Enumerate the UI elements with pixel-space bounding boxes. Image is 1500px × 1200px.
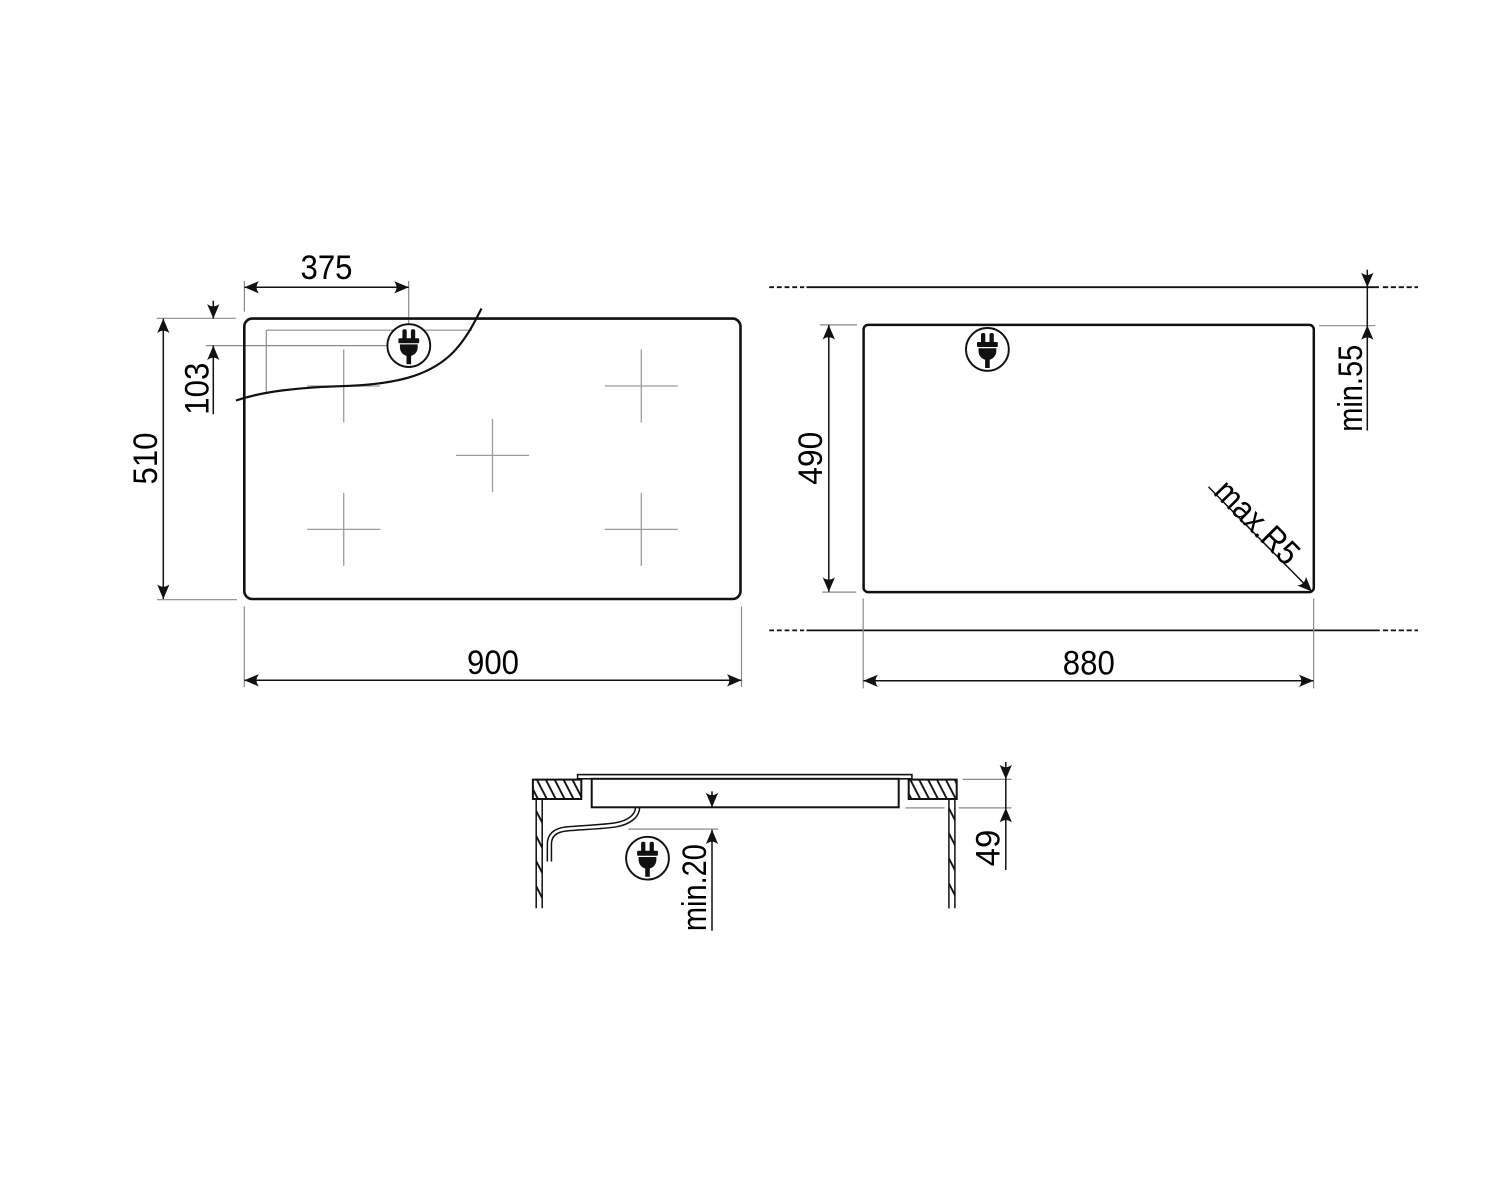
svg-text:880: 880 (1063, 645, 1115, 683)
svg-text:490: 490 (792, 432, 830, 485)
svg-text:49: 49 (970, 830, 1008, 867)
svg-text:510: 510 (127, 433, 165, 485)
svg-text:375: 375 (301, 249, 353, 287)
svg-text:103: 103 (178, 363, 216, 415)
svg-text:min.20: min.20 (676, 844, 714, 931)
svg-text:min.55: min.55 (1332, 345, 1370, 432)
svg-text:900: 900 (467, 644, 519, 682)
